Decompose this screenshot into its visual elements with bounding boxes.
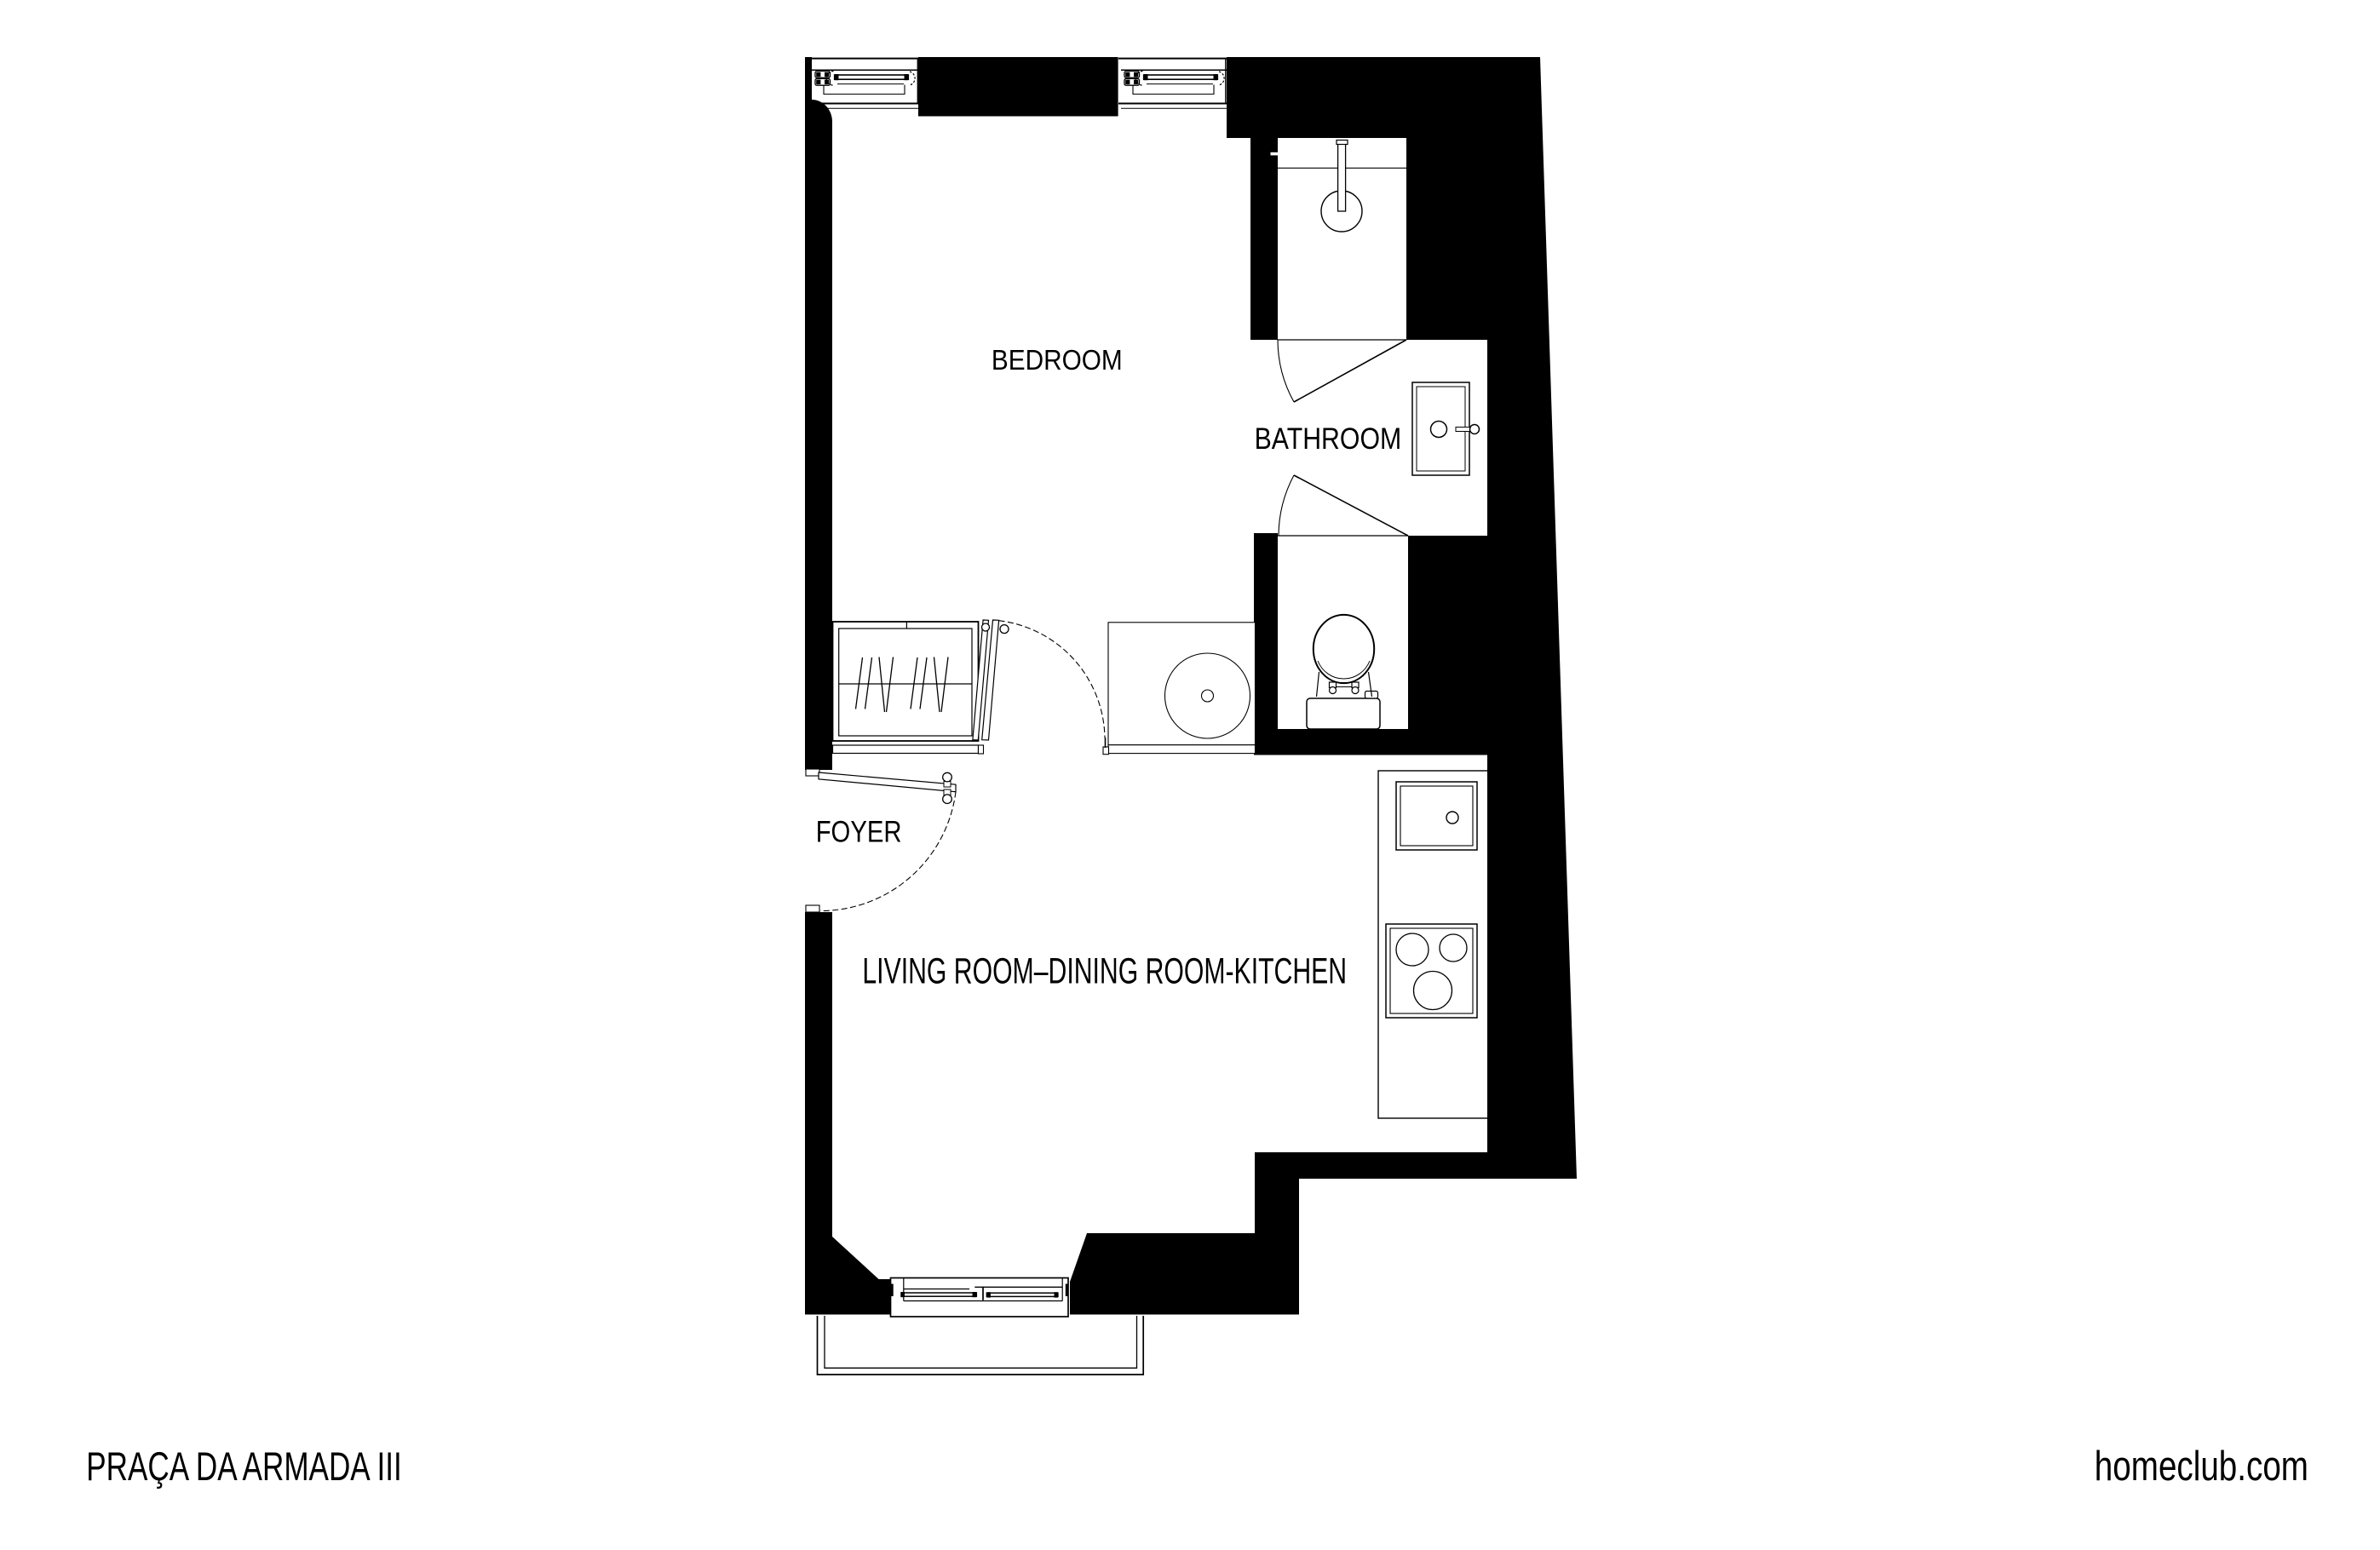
svg-text:BEDROOM: BEDROOM bbox=[992, 345, 1123, 376]
svg-text:LIVING ROOM–DINING ROOM-KITCHE: LIVING ROOM–DINING ROOM-KITCHEN bbox=[862, 951, 1347, 992]
svg-text:BATHROOM: BATHROOM bbox=[1255, 422, 1402, 456]
svg-text:homeclub.com: homeclub.com bbox=[2095, 1444, 2308, 1490]
svg-text:PRAÇA DA ARMADA III: PRAÇA DA ARMADA III bbox=[86, 1444, 402, 1489]
svg-text:FOYER: FOYER bbox=[816, 816, 902, 849]
